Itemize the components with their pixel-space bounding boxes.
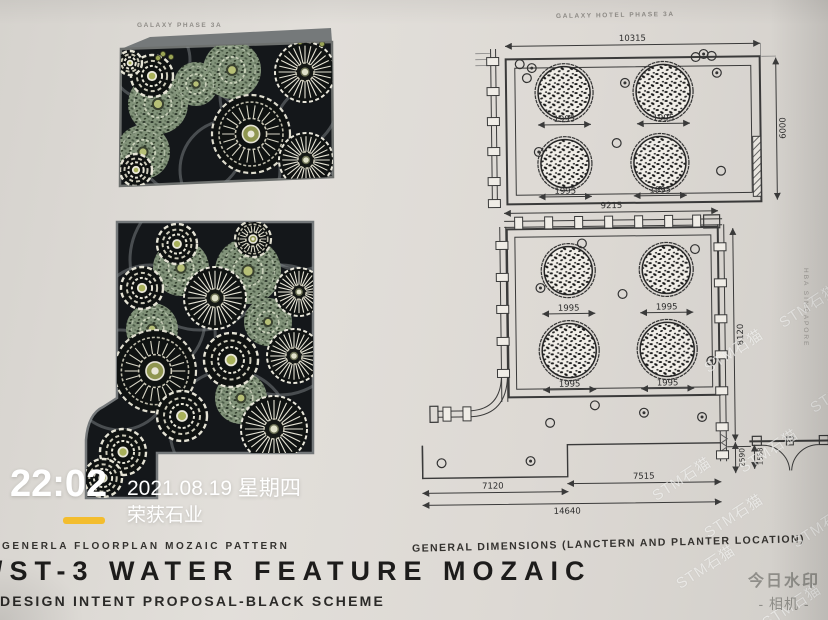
page-subtitle: DESIGN INTENT PROPOSAL-BLACK SCHEME bbox=[0, 593, 385, 609]
rosette-fancy bbox=[235, 221, 271, 257]
rosette-burst bbox=[275, 42, 335, 102]
upper-planters bbox=[535, 61, 695, 193]
upper-plan bbox=[476, 46, 762, 207]
rosette-burst bbox=[267, 329, 321, 383]
rosette-burst bbox=[275, 268, 323, 316]
rosette-target bbox=[157, 391, 207, 441]
timestamp-underline bbox=[63, 517, 105, 524]
camera-app-subname: - 相机 - bbox=[748, 594, 820, 614]
dim-1995: 1995 bbox=[653, 113, 675, 123]
rosette-target bbox=[121, 267, 163, 309]
dim-1995: 1995 bbox=[656, 302, 678, 312]
rosette-fancy bbox=[212, 95, 290, 173]
dim-7120: 7120 bbox=[482, 481, 504, 491]
dimension-plans: 10315 6000 1995 1995 1995 1995 bbox=[405, 0, 828, 515]
left-page-header: GALAXY PHASE 3A bbox=[137, 22, 222, 29]
dim-1995: 1995 bbox=[559, 379, 581, 389]
left-caption: GENERLA FLOORPLAN MOZAIC PATTERN bbox=[2, 541, 289, 552]
dim-1995: 1995 bbox=[554, 187, 576, 197]
mosaic-pattern-render-top bbox=[95, 18, 345, 198]
timestamp-time: 22:02 bbox=[10, 463, 107, 506]
rosette-leafy bbox=[174, 62, 218, 106]
rosette-burst bbox=[241, 396, 307, 462]
timestamp-brand: 荣获石业 bbox=[127, 500, 203, 527]
dim-14640: 14640 bbox=[554, 506, 581, 515]
rosette-target bbox=[204, 333, 258, 387]
dim-1995: 1995 bbox=[649, 185, 671, 195]
dim-1995: 1995 bbox=[554, 115, 576, 125]
camera-app-name: 今日水印 bbox=[748, 567, 820, 591]
timestamp-date: 2021.08.19 星期四 bbox=[127, 472, 301, 502]
dim-1995: 1995 bbox=[558, 303, 580, 313]
dim-7515: 7515 bbox=[633, 472, 655, 482]
rosette-target bbox=[157, 224, 197, 264]
right-caption: GENERAL DIMENSIONS (LANCTERN AND PLANTER… bbox=[412, 533, 805, 555]
dim-1995: 1995 bbox=[657, 378, 679, 388]
dim-9215: 9215 bbox=[601, 201, 623, 211]
rosette-burst bbox=[184, 267, 246, 329]
dim-6000: 6000 bbox=[778, 117, 788, 139]
mosaic-pattern-render-bottom bbox=[70, 210, 340, 510]
rosette-target bbox=[120, 154, 152, 186]
camera-app-watermark: 今日水印 - 相机 - bbox=[748, 567, 820, 614]
dim-10315: 10315 bbox=[619, 34, 646, 44]
upper-plan-wall-posts bbox=[487, 57, 501, 207]
photo-of-design-board: GALAXY PHASE 3A GALAXY HOTEL PHASE 3A HB… bbox=[0, 0, 828, 620]
rosette-target bbox=[118, 51, 142, 75]
page-title: /ST-3 WATER FEATURE MOZAIC bbox=[0, 556, 592, 587]
